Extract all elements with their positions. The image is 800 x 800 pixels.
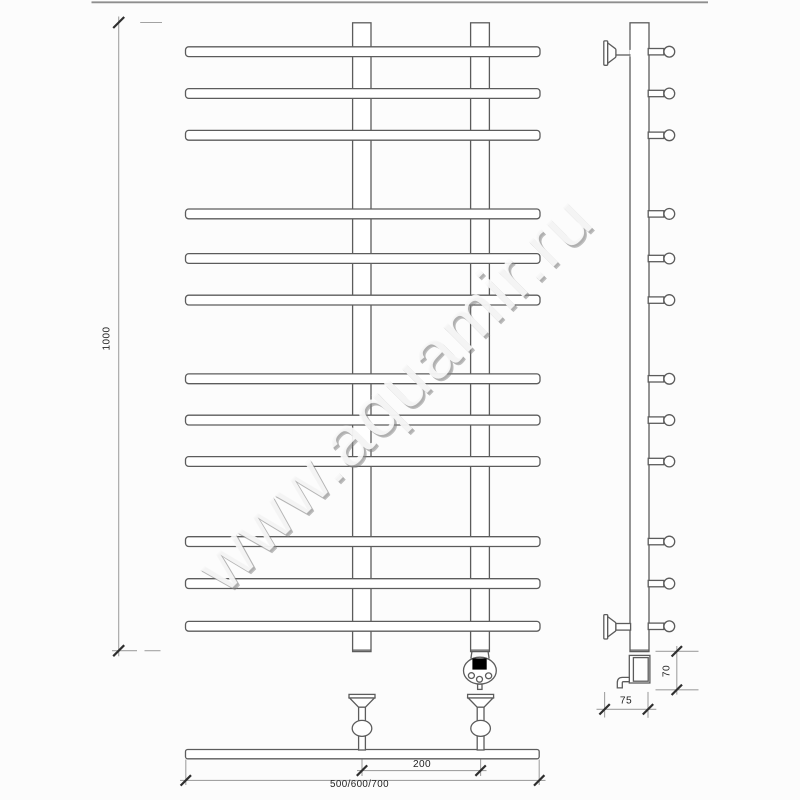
svg-text:75: 75 [620, 696, 632, 707]
svg-text:1000: 1000 [101, 327, 112, 351]
svg-text:70: 70 [662, 665, 673, 677]
svg-text:500/600/700: 500/600/700 [330, 779, 389, 790]
svg-text:200: 200 [413, 759, 431, 770]
